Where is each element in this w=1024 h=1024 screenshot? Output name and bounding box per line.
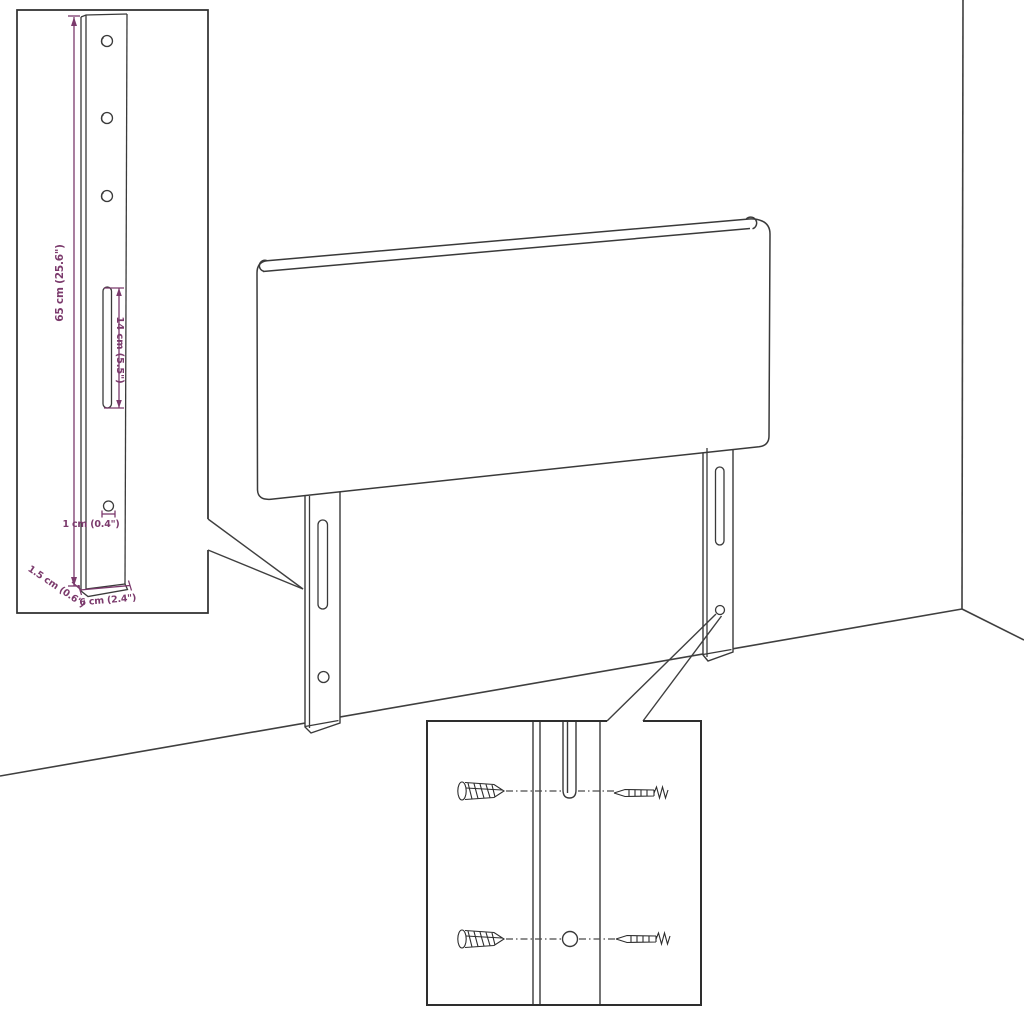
bracket-right-edge (125, 14, 127, 584)
strip-hole (563, 932, 578, 947)
dim-total-height (68, 16, 80, 586)
bracket-hole-3-shade (102, 193, 104, 201)
label-slot-length: 14 cm (5.5") (114, 317, 125, 384)
floor-line-left (0, 609, 962, 776)
machine-screw-icon (616, 933, 670, 944)
strip-slot (563, 722, 576, 798)
label-total-height: 65 cm (25.6") (54, 244, 66, 321)
floor-line-right (962, 609, 1024, 640)
bracket-slot (103, 287, 112, 408)
machine-screw-icon (614, 787, 668, 798)
wall-corner-line (962, 0, 963, 609)
wood-screw-icon (458, 782, 504, 800)
bracket-hole-2-shade (102, 115, 104, 123)
mounting-strip (533, 722, 600, 1004)
dimension-lines (68, 16, 132, 595)
leg-detail-callout (208, 519, 303, 589)
bracket-top-edge (81, 14, 127, 17)
assembly-diagram: 65 cm (25.6") 14 cm (5.5") 1 cm (0.4") 1… (0, 0, 1024, 1024)
label-hole-diameter: 1 cm (0.4") (62, 519, 119, 530)
inset-box-bottom (427, 721, 701, 1005)
diagram-page: 65 cm (25.6") 14 cm (5.5") 1 cm (0.4") 1… (0, 0, 1024, 1024)
bracket-small-hole (104, 501, 114, 511)
bracket-drawing (81, 14, 128, 597)
wood-screw-icon (458, 930, 504, 948)
panel-outline (257, 219, 770, 499)
label-width: 6 cm (2.4") (79, 593, 137, 609)
bracket-hole-1-shade (102, 38, 104, 46)
screw-detail-inset (427, 614, 722, 1005)
headboard-panel (257, 217, 770, 499)
